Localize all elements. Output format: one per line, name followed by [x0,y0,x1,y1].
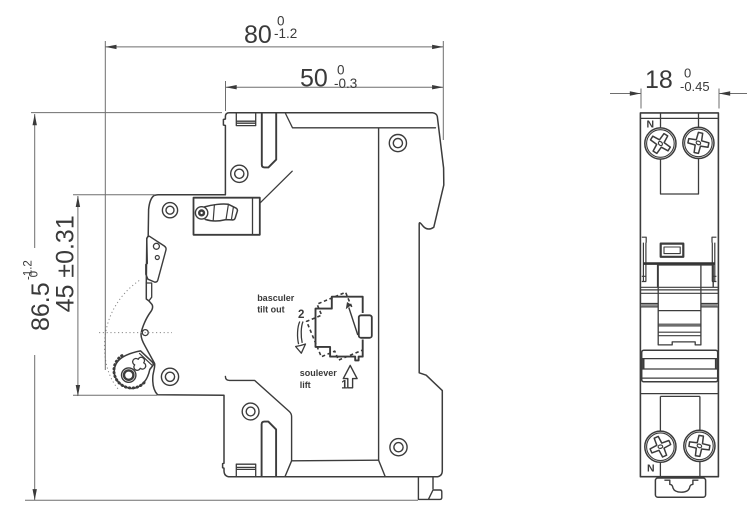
svg-text:-0.3: -0.3 [334,76,357,91]
svg-text:N: N [647,119,655,131]
svg-text:-1.2: -1.2 [274,26,297,41]
svg-text:45 ±0.31: 45 ±0.31 [52,215,80,312]
svg-text:soulever: soulever [300,368,338,378]
svg-text:-1.2: -1.2 [23,260,35,280]
svg-text:N: N [647,463,655,475]
svg-text:80: 80 [244,21,272,49]
svg-text:-0.45: -0.45 [680,79,710,94]
svg-text:basculer: basculer [257,293,295,303]
svg-text:2: 2 [298,309,304,321]
svg-text:50: 50 [300,65,328,93]
svg-text:tilt out: tilt out [257,305,285,315]
svg-text:18: 18 [645,66,673,94]
svg-text:lift: lift [300,380,311,390]
